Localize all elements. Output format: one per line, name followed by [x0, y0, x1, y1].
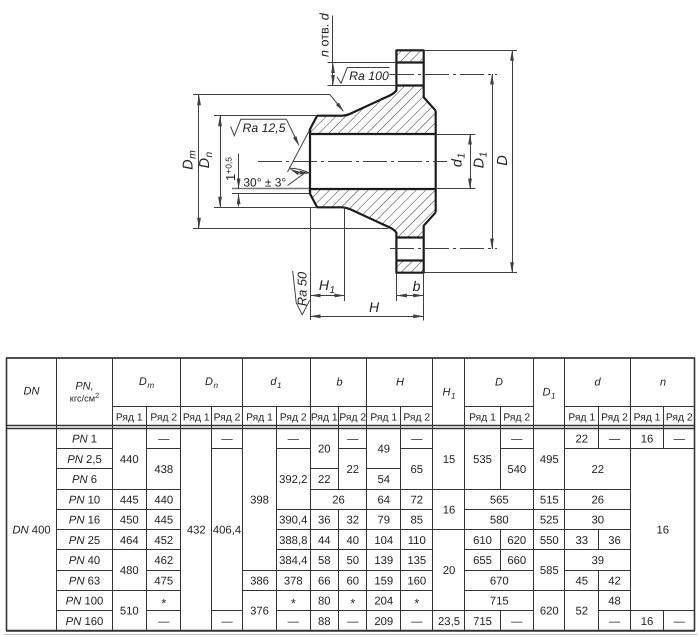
svg-text:160: 160 [407, 575, 426, 587]
svg-text:—: — [609, 616, 621, 628]
svg-text:715: 715 [473, 616, 492, 628]
svg-text:85: 85 [410, 515, 423, 527]
svg-text:Ряд 1: Ряд 1 [469, 412, 496, 423]
svg-text:Ряд 2: Ряд 2 [280, 412, 307, 423]
svg-text:PN,: PN, [75, 381, 93, 393]
svg-text:36: 36 [608, 535, 621, 547]
svg-text:Ряд 1: Ряд 1 [568, 412, 595, 423]
svg-text:660: 660 [507, 555, 526, 567]
svg-text:—: — [511, 434, 523, 446]
svg-text:39: 39 [591, 555, 604, 567]
svg-text:Ряд 1: Ряд 1 [116, 412, 143, 423]
svg-text:DN 400: DN 400 [12, 525, 50, 537]
svg-text:64: 64 [377, 494, 390, 506]
svg-text:15: 15 [443, 454, 456, 466]
svg-text:464: 464 [120, 535, 139, 547]
svg-text:23,5: 23,5 [438, 616, 460, 628]
svg-text:кгс/см2: кгс/см2 [70, 391, 99, 404]
svg-text:386: 386 [250, 575, 269, 587]
svg-text:670: 670 [490, 575, 509, 587]
svg-text:Ряд 2: Ряд 2 [403, 412, 430, 423]
svg-text:PN 10: PN 10 [69, 494, 100, 506]
svg-text:620: 620 [507, 535, 526, 547]
svg-text:406,4: 406,4 [213, 525, 241, 537]
svg-text:22: 22 [575, 434, 588, 446]
svg-text:58: 58 [318, 555, 331, 567]
svg-text:36: 36 [318, 515, 331, 527]
svg-text:22: 22 [591, 464, 604, 476]
svg-text:580: 580 [490, 515, 509, 527]
svg-text:65: 65 [410, 464, 423, 476]
svg-text:42: 42 [608, 575, 621, 587]
svg-text:Ra 12,5: Ra 12,5 [242, 121, 285, 135]
svg-text:H: H [396, 377, 404, 389]
svg-text:715: 715 [490, 596, 509, 608]
svg-text:550: 550 [540, 535, 559, 547]
svg-text:—: — [158, 434, 170, 446]
svg-text:475: 475 [154, 575, 173, 587]
svg-text:26: 26 [591, 494, 604, 506]
svg-text:PN 25: PN 25 [69, 535, 100, 547]
svg-text:—: — [221, 434, 233, 446]
svg-text:PN 100: PN 100 [66, 596, 104, 608]
svg-text:26: 26 [332, 494, 345, 506]
svg-text:535: 535 [473, 454, 492, 466]
svg-text:PN 1: PN 1 [72, 434, 97, 446]
svg-text:495: 495 [540, 454, 559, 466]
svg-text:515: 515 [540, 494, 559, 506]
svg-text:—: — [411, 434, 423, 446]
svg-text:—: — [609, 434, 621, 446]
svg-text:Ряд 1: Ряд 1 [370, 412, 397, 423]
svg-text:80: 80 [318, 596, 331, 608]
svg-text:88: 88 [318, 616, 331, 628]
svg-text:Ra 50: Ra 50 [295, 271, 310, 306]
svg-text:b: b [336, 377, 342, 389]
svg-text:16: 16 [443, 504, 456, 516]
svg-text:*: * [350, 596, 355, 610]
svg-text:D: D [495, 377, 503, 389]
svg-text:Ряд 2: Ряд 2 [150, 412, 177, 423]
svg-text:438: 438 [154, 464, 173, 476]
svg-text:390,4: 390,4 [279, 515, 307, 527]
svg-text:Ряд 1: Ряд 1 [246, 412, 273, 423]
svg-text:440: 440 [120, 454, 139, 466]
svg-text:45: 45 [575, 575, 588, 587]
svg-text:Ряд 1: Ряд 1 [183, 412, 210, 423]
svg-text:159: 159 [374, 575, 393, 587]
svg-text:48: 48 [608, 596, 621, 608]
svg-text:33: 33 [575, 535, 588, 547]
svg-text:Ряд 2: Ряд 2 [503, 412, 530, 423]
svg-text:d: d [594, 377, 601, 389]
svg-text:Ряд 1: Ряд 1 [634, 412, 661, 423]
svg-text:388,8: 388,8 [279, 535, 307, 547]
svg-text:Ряд 2: Ряд 2 [214, 412, 241, 423]
svg-text:—: — [411, 616, 423, 628]
svg-text:32: 32 [346, 515, 359, 527]
svg-text:b: b [413, 278, 421, 294]
svg-text:204: 204 [374, 596, 393, 608]
svg-text:376: 376 [250, 606, 269, 618]
svg-text:—: — [288, 616, 300, 628]
svg-text:DN: DN [24, 386, 40, 398]
svg-text:565: 565 [490, 494, 509, 506]
svg-text:Ряд 2: Ряд 2 [339, 412, 366, 423]
svg-text:16: 16 [641, 616, 654, 628]
svg-text:525: 525 [540, 515, 559, 527]
svg-text:60: 60 [346, 575, 359, 587]
svg-text:480: 480 [120, 565, 139, 577]
svg-text:PN 2,5: PN 2,5 [67, 454, 102, 466]
svg-text:620: 620 [540, 606, 559, 618]
svg-text:44: 44 [318, 535, 331, 547]
svg-text:PN 160: PN 160 [66, 616, 104, 628]
svg-text:*: * [291, 596, 296, 610]
svg-text:104: 104 [374, 535, 393, 547]
svg-text:510: 510 [120, 606, 139, 618]
svg-text:Ra 100: Ra 100 [349, 69, 389, 83]
svg-text:398: 398 [250, 494, 269, 506]
svg-text:30: 30 [591, 515, 604, 527]
svg-text:—: — [674, 434, 686, 446]
svg-text:54: 54 [377, 474, 390, 486]
svg-text:445: 445 [120, 494, 139, 506]
svg-text:PN 16: PN 16 [69, 515, 100, 527]
svg-text:22: 22 [346, 464, 359, 476]
svg-text:432: 432 [187, 525, 206, 537]
svg-text:Ряд 1: Ряд 1 [311, 412, 338, 423]
svg-text:H: H [369, 299, 380, 315]
svg-text:139: 139 [374, 555, 393, 567]
svg-text:—: — [347, 616, 359, 628]
svg-text:n отв. d: n отв. d [318, 12, 332, 57]
svg-text:49: 49 [377, 444, 390, 456]
svg-text:—: — [674, 616, 686, 628]
svg-text:30° ± 3°: 30° ± 3° [243, 176, 286, 190]
svg-text:135: 135 [407, 555, 426, 567]
svg-text:52: 52 [575, 606, 588, 618]
svg-text:20: 20 [318, 444, 331, 456]
svg-text:16: 16 [656, 525, 669, 537]
svg-text:440: 440 [154, 494, 173, 506]
svg-text:450: 450 [120, 515, 139, 527]
svg-text:22: 22 [318, 474, 331, 486]
svg-text:110: 110 [408, 535, 426, 547]
svg-text:50: 50 [346, 555, 359, 567]
svg-text:—: — [511, 616, 523, 628]
svg-text:209: 209 [374, 616, 393, 628]
svg-text:378: 378 [284, 575, 303, 587]
svg-text:—: — [347, 434, 359, 446]
svg-text:*: * [414, 596, 419, 610]
svg-text:PN 6: PN 6 [72, 474, 97, 486]
svg-text:40: 40 [346, 535, 359, 547]
svg-text:72: 72 [410, 494, 423, 506]
svg-text:452: 452 [154, 535, 173, 547]
svg-text:384,4: 384,4 [279, 555, 307, 567]
svg-text:—: — [221, 616, 233, 628]
svg-text:PN 63: PN 63 [69, 575, 100, 587]
svg-text:462: 462 [154, 555, 173, 567]
svg-text:D: D [495, 155, 511, 165]
svg-text:Ряд 2: Ряд 2 [601, 412, 628, 423]
svg-text:79: 79 [377, 515, 390, 527]
svg-text:—: — [158, 616, 170, 628]
svg-text:n: n [660, 377, 666, 389]
svg-text:—: — [288, 434, 300, 446]
svg-text:PN 40: PN 40 [69, 555, 100, 567]
svg-text:20: 20 [443, 565, 456, 577]
svg-text:655: 655 [473, 555, 492, 567]
svg-text:445: 445 [154, 515, 173, 527]
svg-text:585: 585 [540, 565, 559, 577]
svg-text:66: 66 [318, 575, 331, 587]
svg-text:16: 16 [641, 434, 654, 446]
svg-text:*: * [161, 596, 166, 610]
svg-text:Ряд 2: Ряд 2 [666, 412, 693, 423]
svg-text:610: 610 [473, 535, 492, 547]
svg-text:392,2: 392,2 [279, 474, 307, 486]
svg-text:540: 540 [507, 464, 526, 476]
